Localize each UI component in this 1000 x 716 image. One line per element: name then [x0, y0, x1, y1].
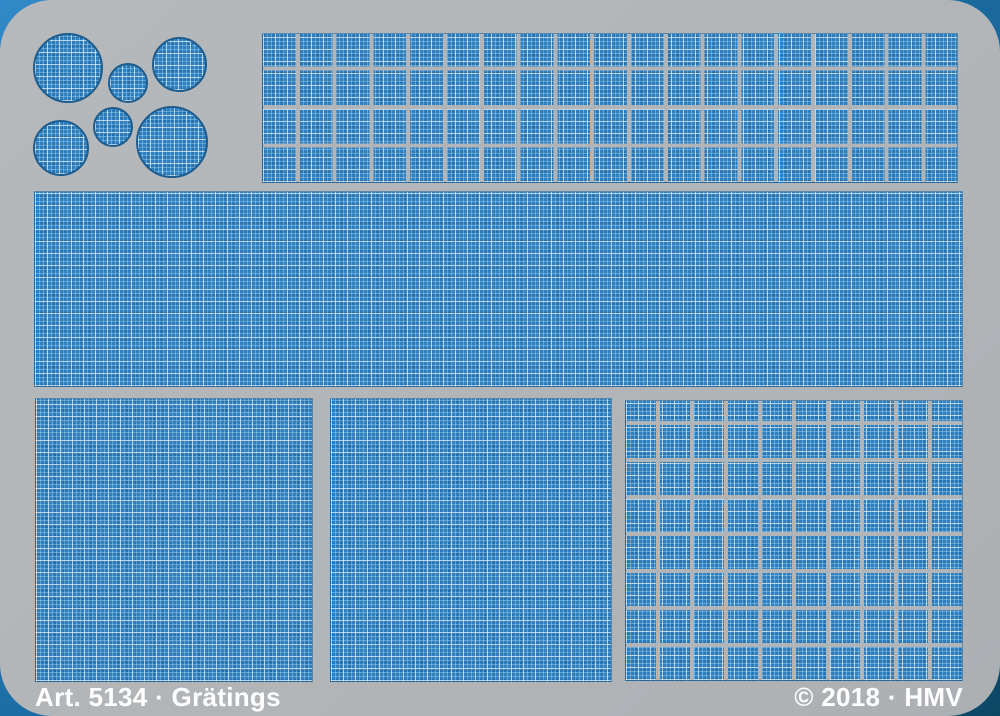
product-image: Art. 5134 · Grätings © 2018 · HMV	[0, 0, 1000, 716]
etch-fret-plate: Art. 5134 · Grätings © 2018 · HMV	[0, 0, 1000, 716]
grating-circle-small-1	[108, 63, 148, 103]
grating-square-left	[35, 398, 313, 682]
grating-circle-large-2	[152, 37, 207, 92]
grating-circle-large-3	[136, 106, 208, 178]
copyright-label: © 2018 · HMV	[794, 684, 963, 710]
article-label: Art. 5134 · Grätings	[35, 684, 281, 710]
grating-square-middle	[330, 398, 612, 682]
grating-circle-medium-1	[33, 120, 89, 176]
grating-circle-small-2	[93, 107, 133, 147]
grating-sheet-large	[34, 191, 963, 387]
grating-grid-panel	[625, 400, 963, 681]
grating-circle-large-1	[33, 33, 103, 103]
grating-strip-grid	[262, 33, 958, 183]
